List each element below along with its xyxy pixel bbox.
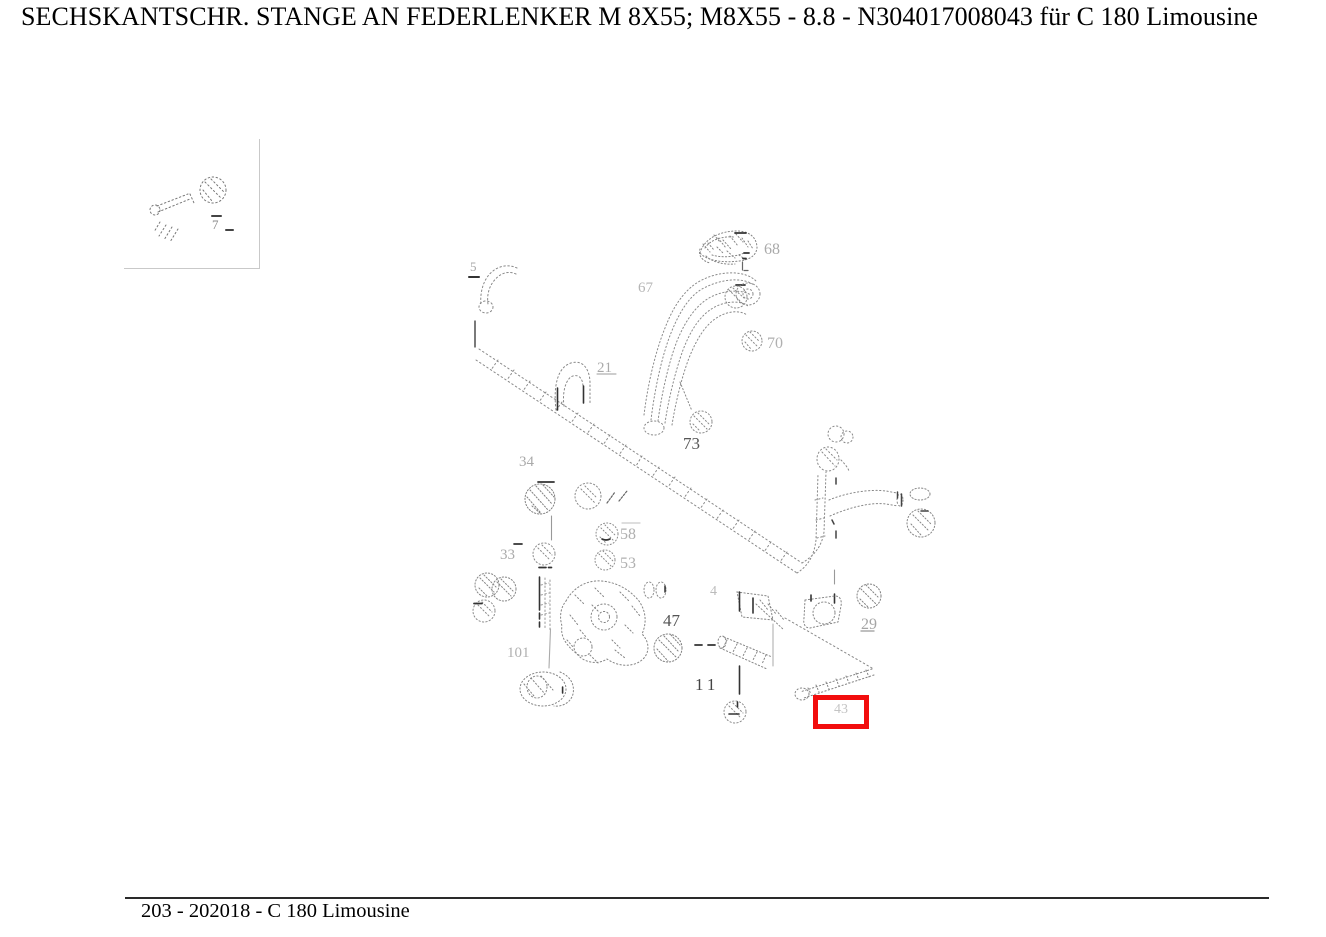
svg-text:34: 34 xyxy=(519,454,535,470)
svg-text:11: 11 xyxy=(695,675,719,694)
svg-text:5: 5 xyxy=(470,259,477,274)
svg-text:73: 73 xyxy=(683,434,700,453)
svg-text:7: 7 xyxy=(212,217,219,232)
svg-text:47: 47 xyxy=(663,611,681,630)
svg-text:70: 70 xyxy=(767,335,783,352)
svg-text:67: 67 xyxy=(638,280,654,296)
svg-text:101: 101 xyxy=(507,645,530,661)
svg-text:4: 4 xyxy=(710,584,717,599)
svg-text:58: 58 xyxy=(620,526,636,543)
svg-text:68: 68 xyxy=(764,241,780,258)
svg-text:33: 33 xyxy=(500,547,515,563)
svg-text:53: 53 xyxy=(620,555,636,572)
